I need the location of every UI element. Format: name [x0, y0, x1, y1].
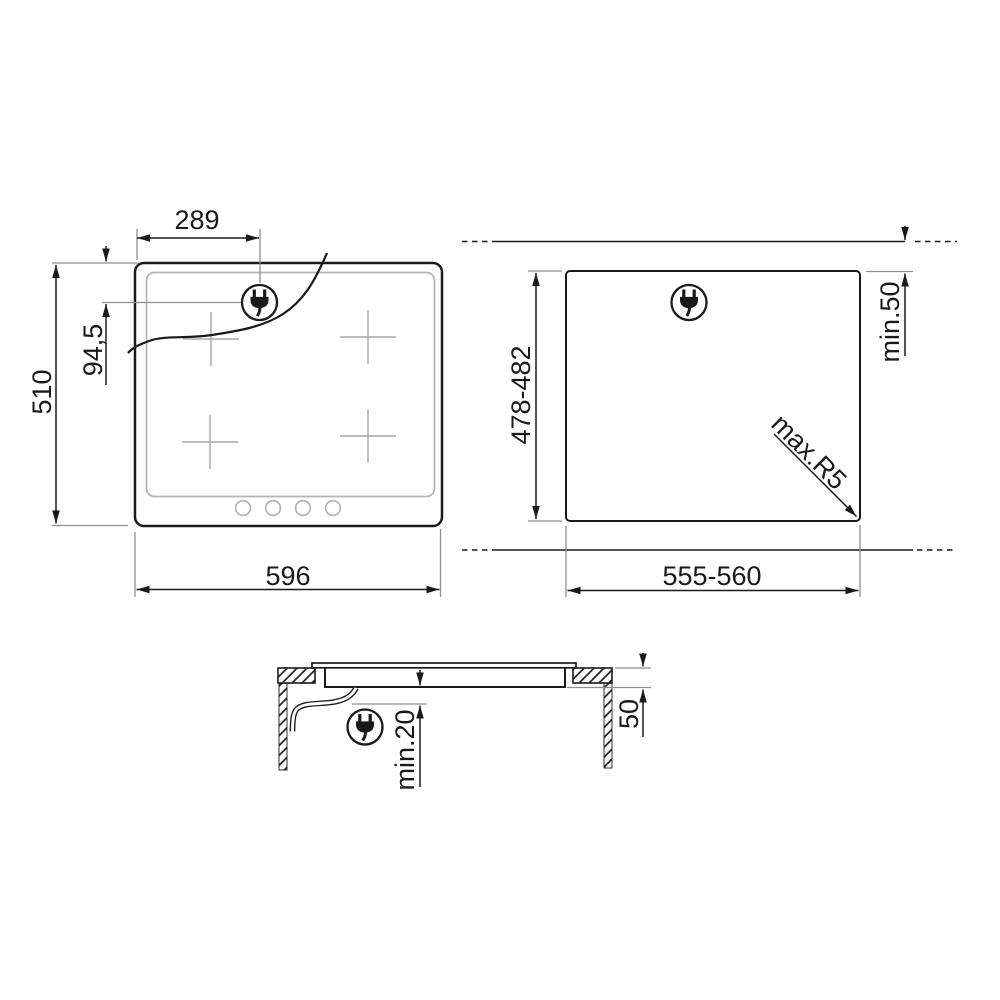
hob-installation-diagram: 289 94,5 510 596 — [0, 0, 1000, 1000]
dim-label-bottom-clearance: min.20 — [390, 709, 420, 790]
dim-label-plug-offset-x: 289 — [174, 205, 219, 235]
dimension-cutout-width: 555-560 — [566, 525, 860, 597]
worktop-section-left — [278, 668, 315, 683]
power-plug-icon — [672, 285, 707, 320]
hob-glass-section — [312, 663, 576, 668]
side-section-view: min.20 50 — [278, 653, 651, 791]
dimension-rear-clearance: min.50 — [866, 226, 913, 363]
cabinet-side-panel-left — [279, 683, 287, 770]
diagram-page: 289 94,5 510 596 — [0, 0, 1000, 1000]
dim-label-plug-offset-y: 94,5 — [78, 324, 108, 377]
power-plug-icon — [348, 710, 383, 745]
dimension-hob-width: 596 — [135, 529, 441, 597]
dim-label-recess-depth: 50 — [614, 699, 644, 729]
power-plug-icon — [242, 285, 277, 320]
dimension-cutout-depth: 478-482 — [506, 271, 562, 521]
dim-label-corner-radius: max.R5 — [766, 409, 853, 496]
dim-label-hob-depth: 510 — [27, 369, 57, 414]
worktop-section-right — [573, 668, 612, 683]
dim-label-rear-clearance: min.50 — [875, 281, 905, 362]
worktop-cutout-view: 478-482 555-560 min.50 max.R5 — [462, 226, 957, 597]
dim-label-cutout-depth: 478-482 — [506, 345, 536, 444]
dim-label-cutout-width: 555-560 — [662, 561, 761, 591]
hob-body-section — [325, 668, 565, 688]
cabinet-side-panel-right — [604, 683, 612, 768]
hob-top-view: 289 94,5 510 596 — [27, 205, 442, 597]
cutout-outline — [566, 271, 860, 521]
dim-label-hob-width: 596 — [265, 561, 310, 591]
corner-radius-callout: max.R5 — [766, 409, 857, 517]
